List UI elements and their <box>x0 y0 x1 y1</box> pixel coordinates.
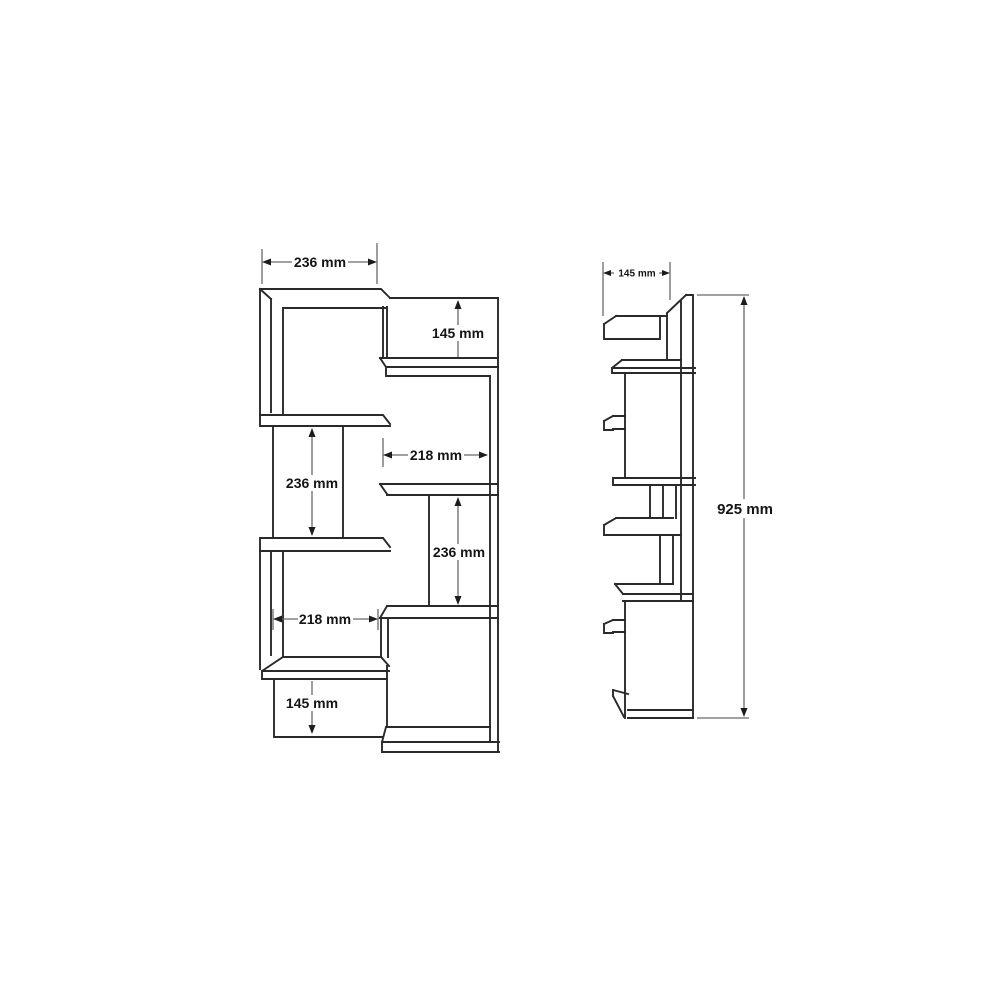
side-bracket-7 <box>604 620 625 633</box>
side-shelf-1 <box>604 316 667 339</box>
side-connector-5 <box>660 535 673 584</box>
arrow-left-icon <box>273 616 282 623</box>
dim-side-height: 925 mm <box>697 295 773 718</box>
side-back-panel <box>667 295 693 718</box>
side-connector-4 <box>650 485 676 518</box>
side-bracket-3 <box>604 416 625 430</box>
arrow-left-icon <box>262 259 271 266</box>
dim-front-gap-left-mid: 236 mm <box>286 428 338 536</box>
dim-front-width-mid-right: 218 mm <box>383 438 488 467</box>
arrow-down-icon <box>309 527 316 536</box>
arrow-down-icon <box>741 708 748 717</box>
arrow-right-icon <box>662 270 670 276</box>
dim-label: 925 mm <box>717 501 773 518</box>
dim-front-width-top: 236 mm <box>262 243 377 284</box>
dim-front-gap-top-right: 145 mm <box>432 300 484 357</box>
front-shelf-4 <box>380 484 498 495</box>
dim-label: 236 mm <box>433 544 485 560</box>
dim-front-gap-right-lower: 236 mm <box>433 497 485 605</box>
front-shelf-6 <box>380 606 498 618</box>
arrow-up-icon <box>741 296 748 305</box>
front-shelf-2 <box>380 358 498 376</box>
arrow-left-icon <box>603 270 611 276</box>
wall-shelf-dimension-drawing: 236 mm 145 mm 236 mm 218 mm 236 mm 218 m… <box>0 0 1000 1000</box>
dim-label: 218 mm <box>410 447 462 463</box>
dim-front-gap-bottom-left: 145 mm <box>286 681 338 734</box>
dim-label: 236 mm <box>286 475 338 491</box>
dim-label: 145 mm <box>432 325 484 341</box>
dim-label: 218 mm <box>299 611 351 627</box>
front-view <box>260 289 499 752</box>
arrow-right-icon <box>369 616 378 623</box>
front-connector-lower <box>381 618 388 657</box>
arrow-right-icon <box>368 259 377 266</box>
dim-label: 145 mm <box>618 269 655 280</box>
side-shelf-5 <box>604 518 681 535</box>
front-shelf-3 <box>260 415 390 426</box>
arrow-down-icon <box>455 596 462 605</box>
arrow-right-icon <box>479 452 488 459</box>
arrow-up-icon <box>309 428 316 437</box>
dim-label: 236 mm <box>294 254 346 270</box>
side-view <box>604 295 695 718</box>
dim-label: 145 mm <box>286 695 338 711</box>
front-top-shelf <box>260 289 498 308</box>
front-bottom-shelf <box>382 727 499 752</box>
front-shelf-7 <box>262 657 389 679</box>
arrow-up-icon <box>455 300 462 309</box>
side-shelf-4 <box>613 478 695 485</box>
arrow-up-icon <box>455 497 462 506</box>
dim-side-depth: 145 mm <box>603 262 670 316</box>
dim-front-width-lower-left: 218 mm <box>273 609 378 630</box>
side-shelf-2 <box>612 360 695 373</box>
side-bottom-slab <box>628 710 693 718</box>
front-connector-top-right <box>383 307 387 358</box>
front-left-panel-mid <box>260 551 283 669</box>
arrow-down-icon <box>309 725 316 734</box>
technical-drawing-page: 236 mm 145 mm 236 mm 218 mm 236 mm 218 m… <box>0 0 1000 1000</box>
arrow-left-icon <box>383 452 392 459</box>
front-shelf-5 <box>260 538 390 551</box>
front-left-panel-top <box>260 289 283 415</box>
